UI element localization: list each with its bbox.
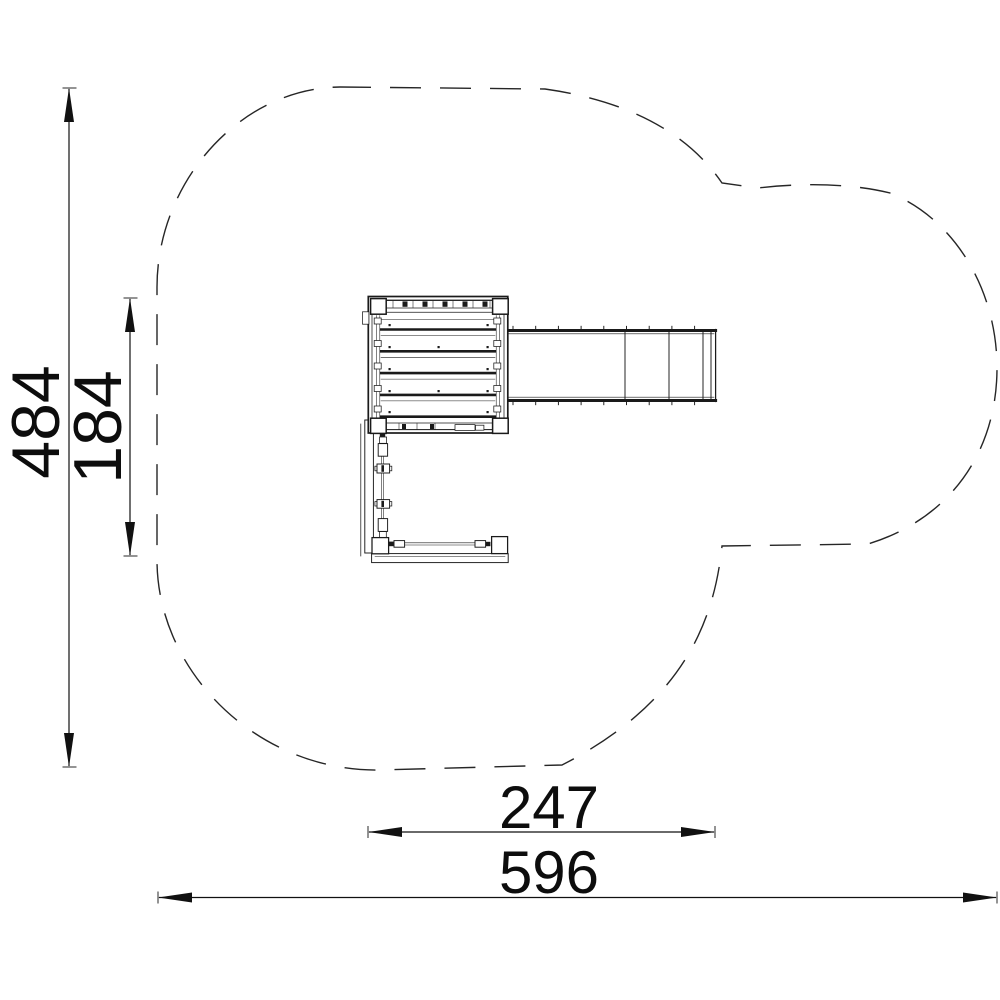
vertical-rope-assembly [375, 434, 392, 538]
safety-zone-path [157, 87, 997, 770]
strip-segment [430, 424, 434, 429]
deck-screw-icon [389, 390, 391, 392]
arrow-up-icon [64, 88, 74, 122]
deck-screw-icon [487, 346, 489, 348]
strip-segment [403, 301, 408, 306]
platform-left-stub [363, 312, 369, 324]
arrow-down-icon [125, 522, 135, 556]
strip-segment [483, 301, 488, 306]
rail-clamp [494, 341, 501, 347]
platform-post-top-right [493, 299, 509, 315]
frame-post-bottom-right [492, 537, 508, 554]
bottom-strip-panel [455, 425, 475, 431]
rope-hook-icon [486, 542, 490, 546]
technical-drawing-canvas: 484 184 247 596 [0, 0, 1000, 1000]
deck-screw-icon [438, 390, 440, 392]
rail-clamp [494, 386, 501, 392]
rail-clamp [374, 363, 381, 369]
dimension-label-184: 184 [60, 370, 136, 483]
dimension-label-247: 247 [499, 774, 599, 841]
frame-left-rail [365, 420, 374, 553]
deck-screw-icon [389, 346, 391, 348]
lower-frame [361, 420, 508, 563]
strip-segment [423, 301, 428, 306]
arrow-down-icon [64, 733, 74, 767]
turnbuckle [378, 444, 387, 457]
rail-clamp [374, 318, 381, 324]
rail-clamp [374, 406, 381, 412]
turnbuckle [378, 519, 387, 532]
arrow-up-icon [125, 298, 135, 332]
dimension-overall-width: 596 [158, 839, 997, 906]
rail-clamp [494, 363, 501, 369]
platform-post-bottom-left [371, 418, 387, 433]
deck-screw-icon [438, 346, 440, 348]
rope-connector [380, 532, 387, 538]
deck-screw-icon [487, 411, 489, 413]
clamp-pin-icon [381, 465, 384, 472]
rail-clamp [494, 406, 501, 412]
deck-screw-icon [389, 368, 391, 370]
platform [363, 297, 509, 434]
strip-segment [443, 301, 448, 306]
arrow-left-icon [368, 827, 402, 837]
rail-clamp [374, 386, 381, 392]
strip-segment [402, 424, 406, 429]
bottom-strip-panel [476, 425, 484, 430]
plan-view-svg: 484 184 247 596 [0, 0, 1000, 1000]
platform-post-top-left [371, 299, 387, 315]
platform-post-bottom-right [493, 418, 509, 433]
safety-zone-outline [157, 87, 997, 770]
slide-flange-ticks [513, 326, 695, 404]
deck-screw-icon [487, 324, 489, 326]
rail-clamp [494, 318, 501, 324]
dimension-label-596: 596 [499, 839, 599, 906]
deck-screw-icon [487, 368, 489, 370]
strip-segment [463, 301, 468, 306]
rope-hook-icon [389, 542, 394, 547]
deck-screw-icon [389, 324, 391, 326]
dimension-equipment-width: 247 [368, 774, 715, 841]
turnbuckle [475, 541, 486, 548]
rail-clamp [374, 341, 381, 347]
arrow-left-icon [158, 893, 192, 903]
rope-connector [380, 437, 387, 443]
clamp-pin-icon [381, 501, 384, 507]
slide [508, 326, 716, 404]
deck-screw-icon [389, 411, 391, 413]
turnbuckle [394, 541, 405, 548]
arrow-right-icon [681, 827, 715, 837]
deck-screw-icon [487, 390, 489, 392]
horizontal-rope-assembly [389, 541, 490, 548]
arrow-right-icon [963, 893, 997, 903]
frame-post-bottom-left [372, 538, 389, 554]
dimension-equipment-depth: 184 [60, 298, 138, 556]
frame-bottom-plate [372, 554, 509, 563]
